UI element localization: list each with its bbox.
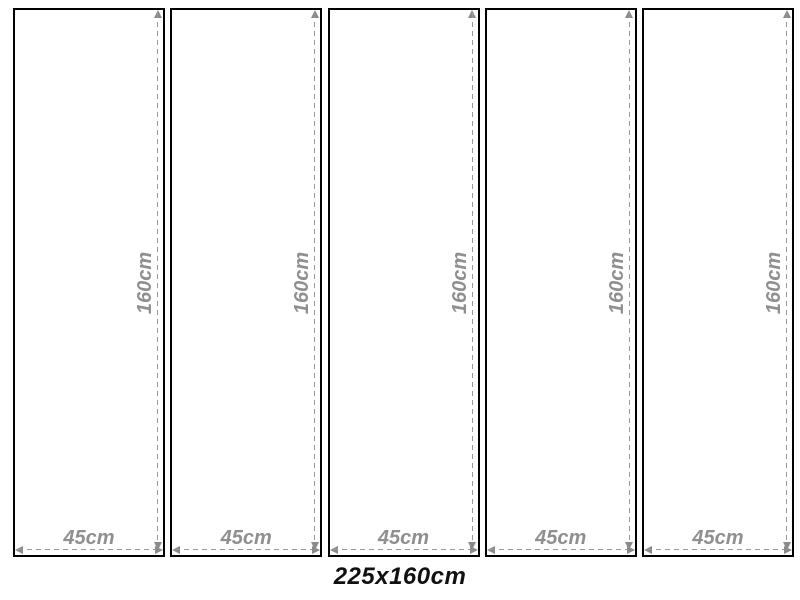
panel-height-label: 160cm bbox=[606, 251, 628, 313]
vertical-dashed-line bbox=[157, 13, 158, 547]
panel-height-label: 160cm bbox=[449, 251, 471, 313]
panel-width-label: 45cm bbox=[644, 528, 792, 548]
panel-width-label: 45cm bbox=[172, 528, 320, 548]
size-diagram: 160cm 45cm 160cm 45cm bbox=[0, 0, 800, 600]
panel-4: 160cm 45cm bbox=[485, 8, 637, 557]
horizontal-dashed-line bbox=[175, 549, 317, 550]
panel-height-label: 160cm bbox=[134, 251, 156, 313]
panel-3: 160cm 45cm bbox=[328, 8, 480, 557]
vertical-dashed-line bbox=[629, 13, 630, 547]
panel-5: 160cm 45cm bbox=[642, 8, 794, 557]
panel-1: 160cm 45cm bbox=[13, 8, 165, 557]
panel-width-label: 45cm bbox=[15, 528, 163, 548]
panel-width-label: 45cm bbox=[487, 528, 635, 548]
panel-height-label: 160cm bbox=[291, 251, 313, 313]
horizontal-dashed-line bbox=[333, 549, 475, 550]
total-size-label: 225x160cm bbox=[0, 564, 800, 590]
horizontal-dashed-line bbox=[490, 549, 632, 550]
panel-height-label: 160cm bbox=[763, 251, 785, 313]
vertical-dashed-line bbox=[314, 13, 315, 547]
vertical-dashed-line bbox=[472, 13, 473, 547]
panel-width-label: 45cm bbox=[330, 528, 478, 548]
horizontal-dashed-line bbox=[647, 549, 789, 550]
horizontal-dashed-line bbox=[18, 549, 160, 550]
panel-2: 160cm 45cm bbox=[170, 8, 322, 557]
vertical-dashed-line bbox=[786, 13, 787, 547]
panels-row: 160cm 45cm 160cm 45cm bbox=[13, 8, 794, 557]
